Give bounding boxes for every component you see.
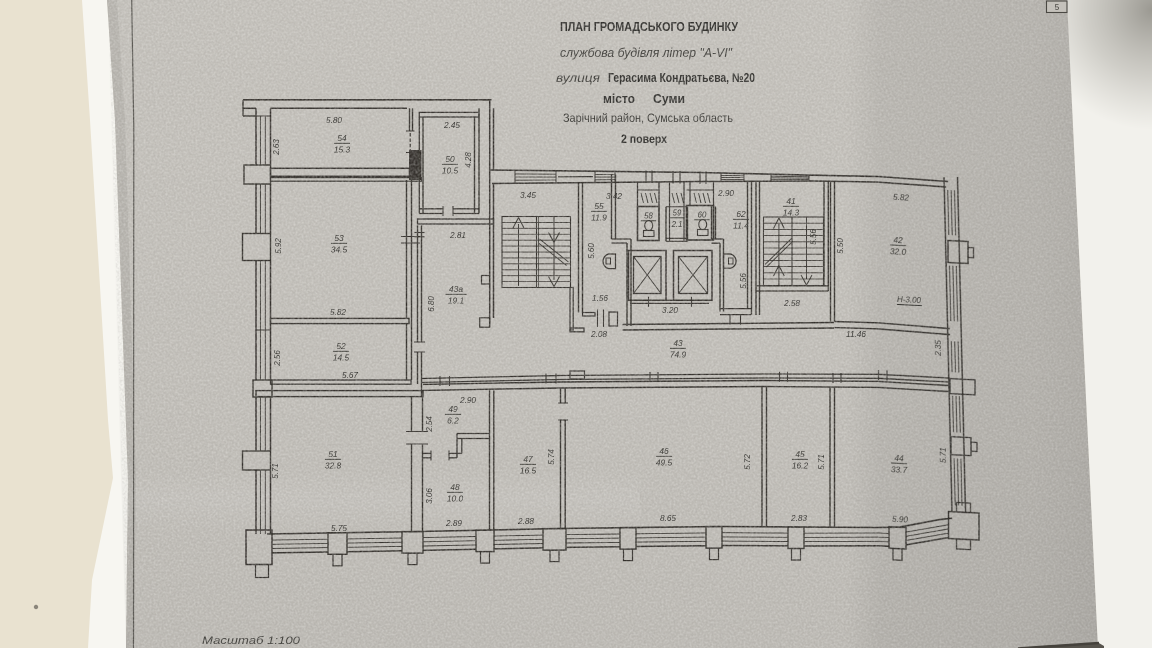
svg-text:5: 5	[1055, 3, 1060, 12]
